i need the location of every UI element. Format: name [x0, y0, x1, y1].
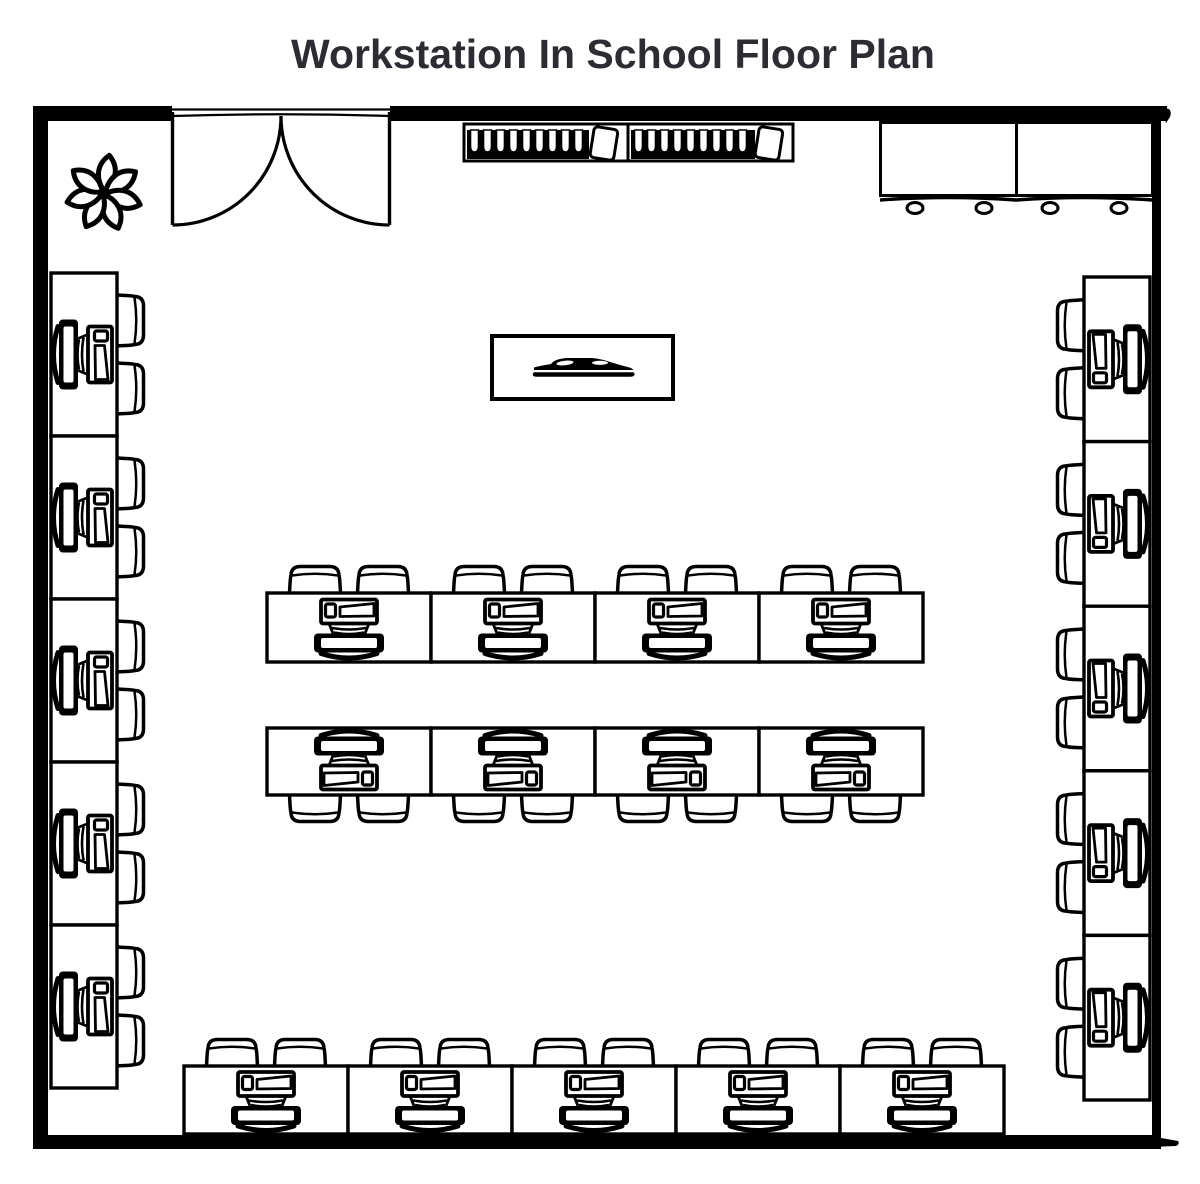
- svg-text:Workstation In School Floor Pl: Workstation In School Floor Plan: [291, 31, 935, 77]
